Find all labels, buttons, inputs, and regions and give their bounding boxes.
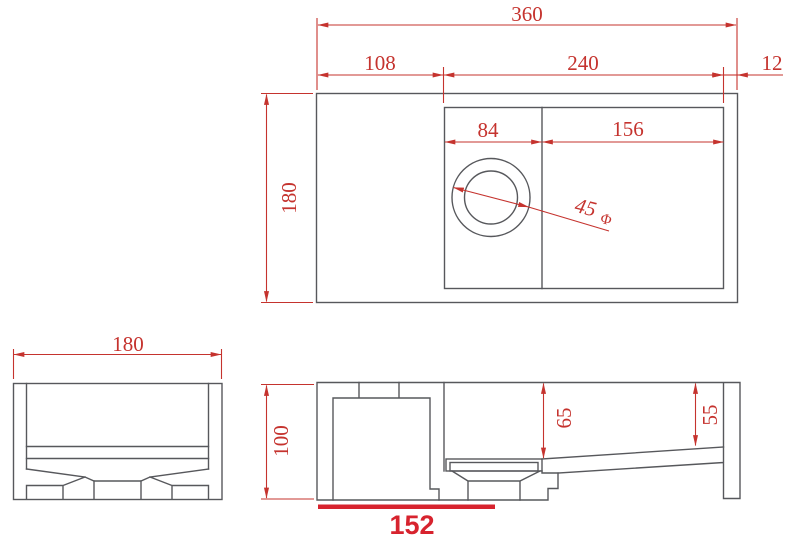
front-left-cavity [333,383,439,501]
side-view: 180 [14,332,223,500]
top-view-dimensions: 360 108 240 12 180 84 156 [261,2,783,303]
top-view-outline [317,94,738,303]
dim-front-right-end-depth: 55 [698,405,722,426]
side-left-foot [27,477,86,499]
dim-front-bowl-depth: 65 [552,408,576,429]
front-view: 100 65 55 152 [261,383,740,541]
side-bowl-underside [27,469,209,481]
dim-top-overall-width: 360 [511,2,543,26]
top-view: 360 108 240 12 180 84 156 [261,2,783,303]
dim-top-left-segment: 108 [364,51,396,75]
technical-drawing-canvas: 360 108 240 12 180 84 156 [0,0,800,543]
drain-flange [446,459,542,471]
diameter-symbol: Φ [599,211,614,229]
dim-top-right-segment: 12 [762,51,783,75]
dim-top-bowl-width: 84 [478,118,500,142]
drain-flange-inner [450,463,538,472]
dim-drain-diameter: 45 [573,193,599,221]
dim-top-drainboard-width: 156 [612,117,644,141]
dim-front-highlighted-length: 152 [389,510,434,540]
drainboard-slope-upper [542,447,724,459]
sink-outer-rect [317,94,738,303]
dim-front-height: 100 [269,425,293,457]
dim-top-depth: 180 [277,182,301,214]
highlight-bar [318,505,495,510]
front-outer-profile [317,383,740,501]
side-outer-rect [14,384,223,500]
front-view-dimensions: 100 65 55 152 [261,384,722,541]
technical-drawing: 360 108 240 12 180 84 156 [0,0,800,543]
dim-side-width: 180 [112,332,144,356]
drain-pipe [452,471,540,500]
drain-step [542,471,558,473]
dim-top-middle-segment: 240 [567,51,599,75]
side-right-foot [150,477,209,499]
side-view-dimensions: 180 [14,332,222,379]
front-view-outline [317,383,740,501]
side-view-outline [14,384,223,500]
